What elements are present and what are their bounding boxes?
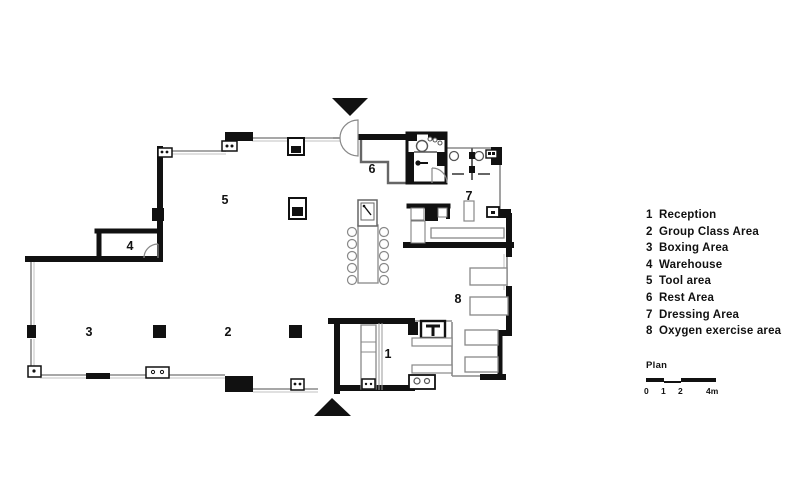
scale-bar: Plan 0 1 2 4m — [646, 360, 756, 396]
room-label-4: 4 — [127, 239, 134, 253]
legend-item-label: Tool area — [659, 273, 711, 290]
reception-desk — [361, 323, 382, 390]
wall-pier — [27, 325, 36, 338]
column — [153, 325, 166, 338]
exercise-machine-icon — [465, 357, 498, 372]
exercise-machine-icon — [470, 268, 507, 285]
scale-segment — [681, 378, 716, 382]
legend-item-label: Oxygen exercise area — [659, 323, 781, 340]
legend-item-num: 4 — [646, 257, 659, 274]
scale-tick: 4m — [706, 386, 718, 396]
wall-units — [28, 138, 306, 390]
legend-item-num: 5 — [646, 273, 659, 290]
scale-bar-graphic — [646, 378, 716, 384]
scale-tick: 2 — [678, 386, 683, 396]
stool-icon — [475, 152, 484, 161]
column — [289, 325, 302, 338]
legend-item-label: Warehouse — [659, 257, 722, 274]
legend-item-num: 2 — [646, 224, 659, 241]
scale-segment — [646, 378, 664, 382]
legend-item-label: Rest Area — [659, 290, 714, 307]
scale-ticks: 0 1 2 4m — [646, 386, 756, 396]
legend-item-label: Dressing Area — [659, 307, 739, 324]
legend-item-label: Group Class Area — [659, 224, 759, 241]
room-label-3: 3 — [86, 325, 93, 339]
room-label-5: 5 — [222, 193, 229, 207]
legend-item-label: Boxing Area — [659, 240, 729, 257]
exercise-machine-icon — [465, 330, 498, 345]
wall-pier — [152, 208, 164, 221]
warehouse-door-arc — [144, 244, 158, 258]
legend-item-label: Reception — [659, 207, 716, 224]
room-label-7: 7 — [466, 189, 473, 203]
structural-columns — [27, 208, 302, 338]
entrance-arrow-bottom-icon — [314, 398, 351, 416]
legend-item: 1 Reception — [646, 207, 781, 224]
meeting-table — [348, 200, 389, 285]
room-label-1: 1 — [385, 347, 392, 361]
legend-item-num: 3 — [646, 240, 659, 257]
legend-item-num: 6 — [646, 290, 659, 307]
sink-icon — [414, 378, 420, 384]
room-label-8: 8 — [455, 292, 462, 306]
legend-item: 4 Warehouse — [646, 257, 781, 274]
legend-item-num: 1 — [646, 207, 659, 224]
legend-item: 8 Oxygen exercise area — [646, 323, 781, 340]
bench-icon — [464, 201, 474, 221]
bench-icon — [431, 228, 504, 238]
entrance-door-arc — [340, 120, 358, 156]
legend-item: 2 Group Class Area — [646, 224, 781, 241]
legend-item: 7 Dressing Area — [646, 307, 781, 324]
legend-item: 6 Rest Area — [646, 290, 781, 307]
scale-segment — [664, 381, 681, 383]
floor-plan-page: 1 2 3 4 5 6 7 8 1 Reception 2 Group Clas… — [0, 0, 800, 500]
bathroom-bottom — [408, 321, 452, 389]
entrance-arrow-top-icon — [332, 98, 368, 116]
legend-item-num: 7 — [646, 307, 659, 324]
scale-tick: 0 — [644, 386, 649, 396]
room-label-2: 2 — [225, 325, 232, 339]
legend-item-num: 8 — [646, 323, 659, 340]
exercise-machine-icon — [470, 297, 508, 315]
bathroom-top — [407, 133, 447, 183]
scale-title: Plan — [646, 360, 756, 371]
sink-icon — [417, 141, 428, 152]
legend-item: 5 Tool area — [646, 273, 781, 290]
legend-item: 3 Boxing Area — [646, 240, 781, 257]
legend: 1 Reception 2 Group Class Area 3 Boxing … — [646, 207, 781, 340]
exercise-equipment — [431, 228, 508, 372]
scale-tick: 1 — [661, 386, 666, 396]
stool-icon — [450, 152, 459, 161]
room-label-6: 6 — [369, 162, 376, 176]
